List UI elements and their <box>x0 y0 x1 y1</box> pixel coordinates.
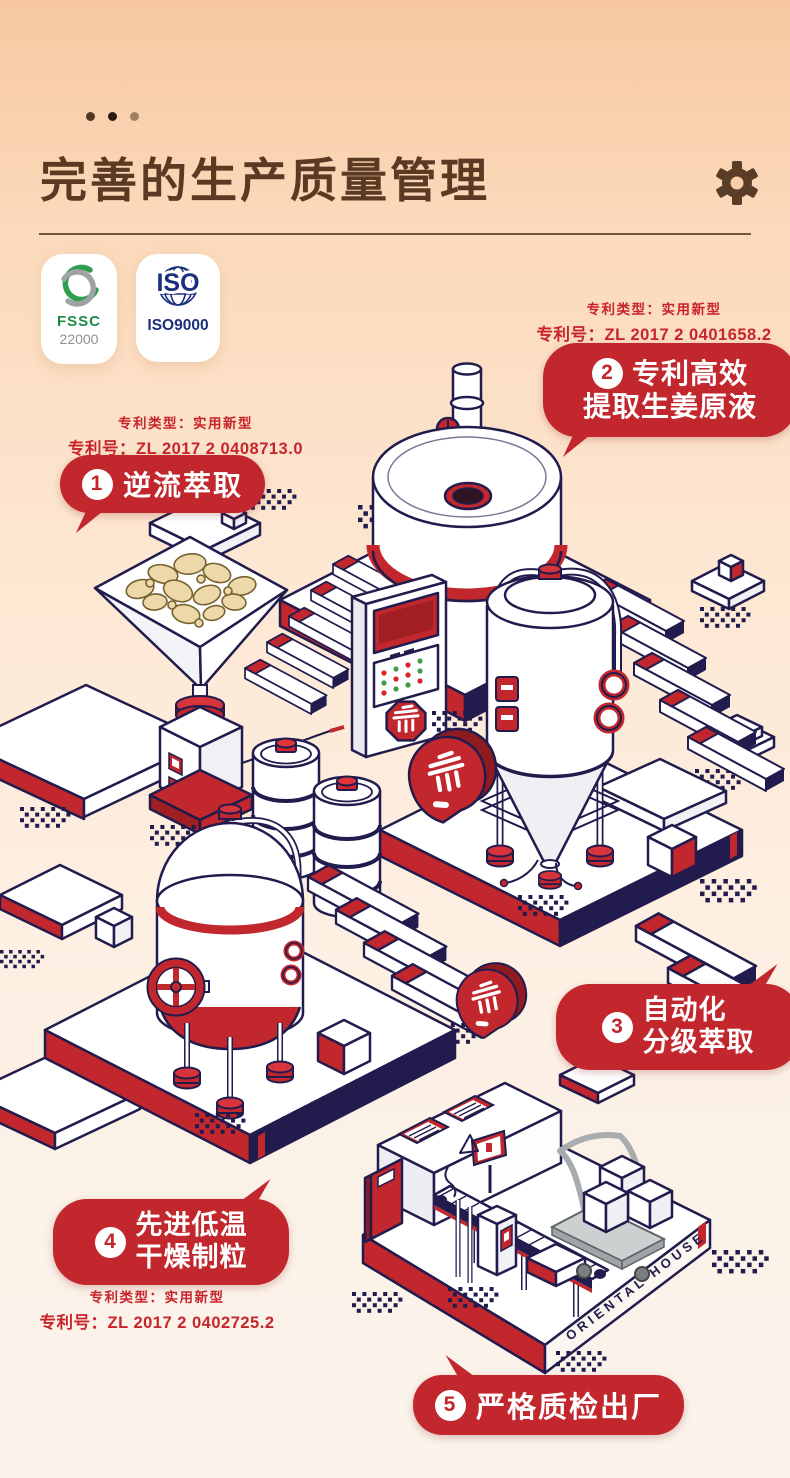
extraction-tank <box>373 364 561 601</box>
platform-packing: ORIENTAL HOUSE <box>352 1083 769 1373</box>
svg-text:ISO: ISO <box>156 269 199 297</box>
title-divider <box>39 233 751 235</box>
fssc-label: FSSC <box>57 314 101 331</box>
step-number-badge: 1 <box>82 469 113 500</box>
patent-info-step2: 专利类型：实用新型 专利号：ZL 2017 2 0401658.2 <box>534 298 774 345</box>
step-2-bubble: 2 专利高效 提取生姜原液 <box>543 343 790 437</box>
conical-silo <box>482 565 626 916</box>
step-label: 自动化 <box>643 995 755 1027</box>
step-number-badge: 4 <box>95 1227 126 1258</box>
patent-type: 专利类型：实用新型 <box>32 1286 282 1306</box>
promo-page: 完善的生产质量管理 FSSC 22000 <box>0 0 790 1478</box>
page-title: 完善的生产质量管理 <box>40 142 490 211</box>
step-label: 逆流萃取 <box>123 464 243 504</box>
fssc-number: 22000 <box>60 331 99 348</box>
gear-icon <box>712 158 762 208</box>
patent-number: 专利号：ZL 2017 2 0401658.2 <box>534 321 774 345</box>
iso9000-badge: ISO ISO9000 <box>136 254 220 362</box>
step-4-bubble: 4 先进低温 干燥制粒 <box>53 1199 289 1285</box>
step-label: 提取生姜原液 <box>583 390 757 423</box>
step-3-bubble: 3 自动化 分级萃取 <box>556 984 790 1070</box>
patent-info-step1: 专利类型：实用新型 专利号：ZL 2017 2 0408713.0 <box>68 412 303 459</box>
step-label: 严格质检出厂 <box>476 1384 662 1426</box>
patent-number: 专利号：ZL 2017 2 0402725.2 <box>32 1309 282 1333</box>
step-number-badge: 3 <box>602 1012 633 1043</box>
fssc-swirl-icon <box>52 260 106 314</box>
decorative-dots <box>86 112 139 121</box>
step-number-badge: 5 <box>435 1390 466 1421</box>
patent-type: 专利类型：实用新型 <box>68 412 303 432</box>
step-label: 干燥制粒 <box>136 1242 248 1274</box>
step-label: 专利高效 <box>632 357 748 390</box>
patent-type: 专利类型：实用新型 <box>534 298 774 318</box>
step-number-badge: 2 <box>592 358 623 389</box>
fssc-22000-badge: FSSC 22000 <box>41 254 117 364</box>
iso-label: ISO9000 <box>147 317 208 335</box>
step-label: 先进低温 <box>136 1210 248 1242</box>
iso-globe-icon: ISO <box>146 258 210 316</box>
step-5-bubble: 5 严格质检出厂 <box>413 1375 684 1435</box>
patent-info-step4: 专利类型：实用新型 专利号：ZL 2017 2 0402725.2 <box>32 1286 282 1333</box>
brand-octagon-logo-icon <box>387 702 426 741</box>
step-label: 分级萃取 <box>643 1027 755 1059</box>
step-1-bubble: 1 逆流萃取 <box>60 455 265 513</box>
